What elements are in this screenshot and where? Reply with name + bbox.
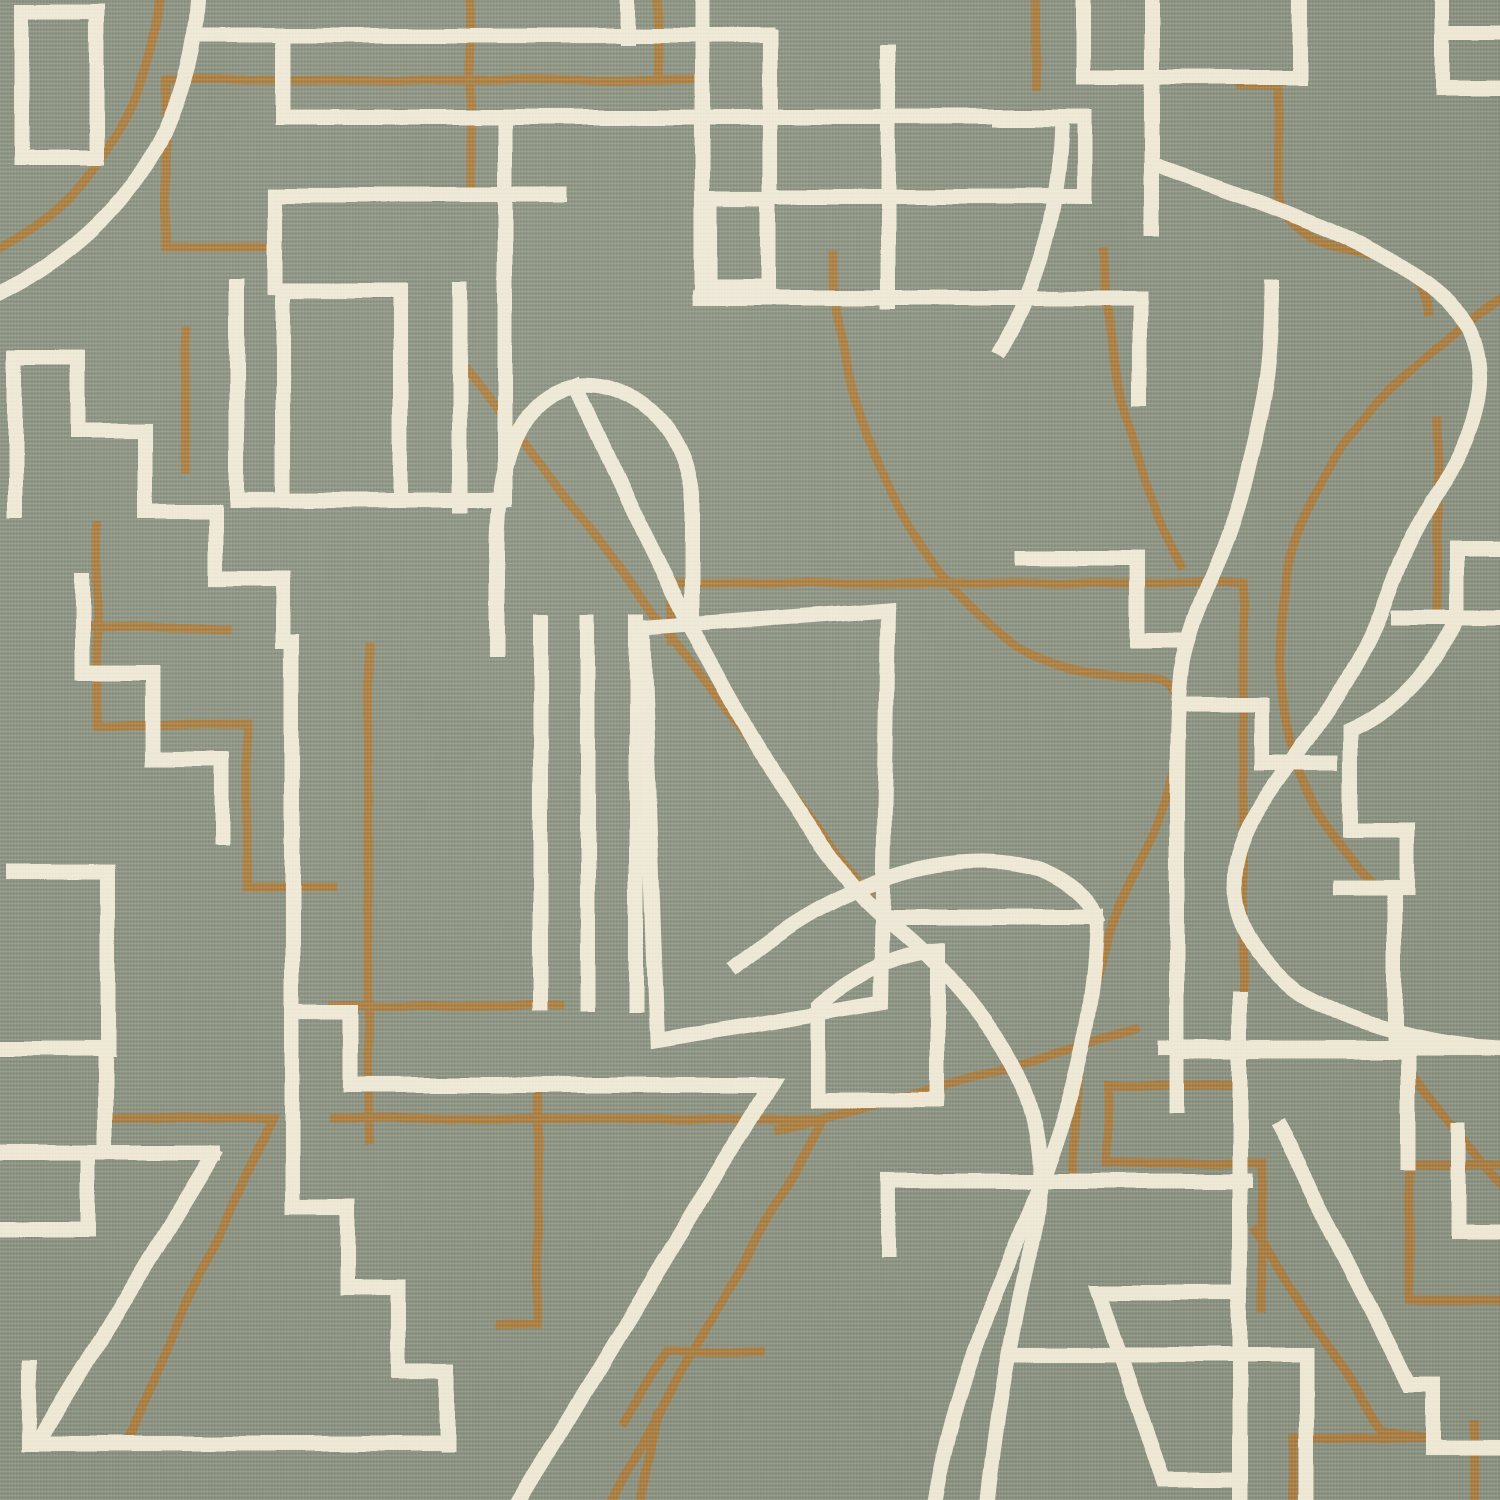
pattern-canvas <box>0 0 1500 1500</box>
textile-swatch <box>0 0 1500 1500</box>
mottle-overlay <box>0 0 1500 1500</box>
